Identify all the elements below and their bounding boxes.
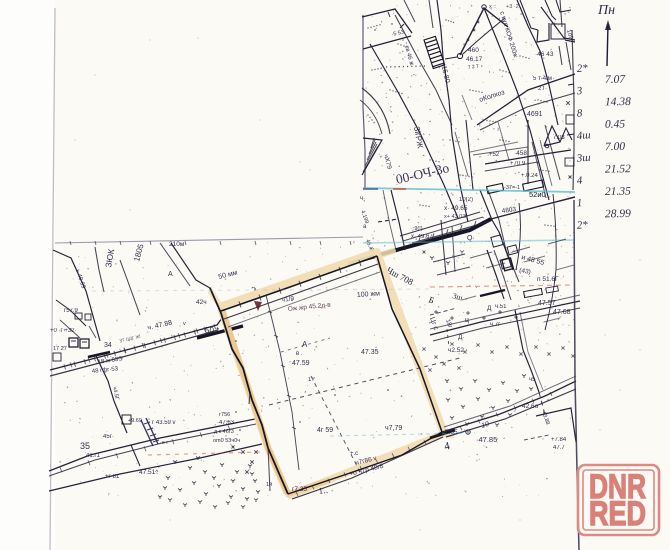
svg-text:Д·: Д· (458, 334, 465, 341)
svg-text:50 *: 50 * (205, 326, 219, 335)
svg-text:+9.69: +9.69 (128, 418, 142, 424)
svg-text:ч·: ч· (360, 196, 365, 202)
svg-text:4691: 4691 (527, 111, 543, 118)
svg-text:+3 ·2: +3 ·2 (506, 4, 519, 10)
svg-text:в .: в . (296, 351, 303, 357)
svg-text:Д: Д (487, 305, 492, 312)
svg-text:+г·81: +г·81 (105, 474, 120, 480)
svg-text:10(2): 10(2) (459, 197, 473, 203)
svg-text:21.52: 21.52 (605, 163, 631, 175)
svg-text:г7.35: г7.35 (292, 486, 307, 493)
svg-text:+7.84: +7.84 (551, 437, 567, 443)
svg-text:1й: 1й (266, 481, 272, 488)
svg-text:А: А (302, 340, 308, 349)
svg-text:2*: 2* (576, 219, 588, 232)
svg-text:42ч: 42ч (196, 299, 207, 306)
svg-text:7.00: 7.00 (605, 141, 626, 153)
svg-text:4г 59: 4г 59 (317, 427, 333, 434)
svg-text:47.57: 47.57 (538, 300, 556, 307)
svg-text:·:9(!): ·:9(!) (411, 226, 423, 232)
svg-text:1.: 1. (318, 485, 326, 496)
svg-text:7.65: 7.65 (445, 429, 458, 436)
svg-text:47.68: 47.68 (553, 309, 571, 316)
svg-text:2Т·: 2Т· (538, 86, 547, 92)
svg-text:·47.63: ·47.63 (217, 420, 235, 426)
svg-text:460: 460 (468, 47, 479, 54)
svg-text:ч 51: ч 51 (495, 304, 507, 310)
svg-text:42.6о: 42.6о (522, 403, 539, 410)
svg-text:4ш: 4ш (576, 129, 591, 142)
svg-text:ч.7г: ч.7г (490, 322, 501, 328)
svg-text:·46 43: ·46 43 (535, 51, 554, 58)
svg-text:41.г1: 41.г1 (86, 453, 101, 459)
svg-text:1?: 1? (308, 377, 315, 383)
svg-text:RED: RED (589, 495, 646, 533)
svg-text:47.35: 47.35 (361, 349, 379, 356)
svg-text:х ::: х :: (489, 4, 497, 10)
svg-text:ч2.52: ч2.52 (448, 347, 464, 354)
svg-text:17 27: 17 27 (53, 346, 67, 352)
svg-text:5 т-4/м: 5 т-4/м (533, 76, 552, 82)
svg-text:47.7: 47.7 (553, 445, 565, 451)
svg-text:п 51.6Г: п 51.6Г (537, 276, 559, 283)
svg-text:г 43.59 v: г 43.59 v (152, 420, 176, 426)
svg-text:х· 49.65: х· 49.65 (444, 205, 468, 212)
svg-text:47.51^: 47.51^ (139, 469, 159, 476)
svg-text:х+ 43.0Э: х+ 43.0Э (444, 214, 466, 220)
svg-text:3ш: 3ш (575, 152, 591, 165)
svg-text:28.99: 28.99 (605, 208, 631, 220)
svg-text:+.0.24: +.0.24 (521, 173, 539, 179)
svg-text:45г·: 45г· (103, 434, 114, 440)
svg-text:г756: г756 (219, 412, 230, 418)
svg-text:ц: ц (465, 317, 469, 324)
svg-text:·47.85: ·47.85 (476, 435, 497, 444)
svg-text:2*: 2* (576, 62, 588, 75)
svg-text:ч5: ч5 (529, 377, 536, 383)
svg-text:ч7,79: ч7,79 (385, 425, 402, 432)
svg-text:35: 35 (80, 441, 90, 451)
svg-text:47.59: 47.59 (292, 360, 310, 367)
svg-text:+70 9: +70 9 (510, 161, 526, 167)
svg-text:Пн: Пн (597, 3, 615, 18)
svg-text:+52: +52 (489, 152, 500, 158)
svg-text:+.с: +.с (350, 451, 358, 457)
svg-text:v: v (183, 321, 186, 327)
svg-text:21.35: 21.35 (605, 186, 631, 198)
svg-text:46.17: 46.17 (466, 56, 483, 63)
svg-text:д к 46г3: д к 46г3 (214, 429, 234, 435)
svg-text:34: 34 (104, 342, 112, 349)
svg-text:1: 1 (576, 197, 582, 209)
svg-text:0.45: 0.45 (605, 118, 626, 130)
svg-text:А: А (168, 271, 173, 278)
svg-text:·458: ·458 (514, 150, 527, 157)
svg-text:7.03: 7.03 (553, 135, 565, 141)
svg-text:х· 49.67: х· 49.67 (411, 234, 433, 240)
svg-text:7.07: 7.07 (605, 74, 627, 86)
svg-text:14.38: 14.38 (605, 96, 631, 108)
svg-text:оm0 53ч0ч: оm0 53ч0ч (213, 438, 240, 444)
